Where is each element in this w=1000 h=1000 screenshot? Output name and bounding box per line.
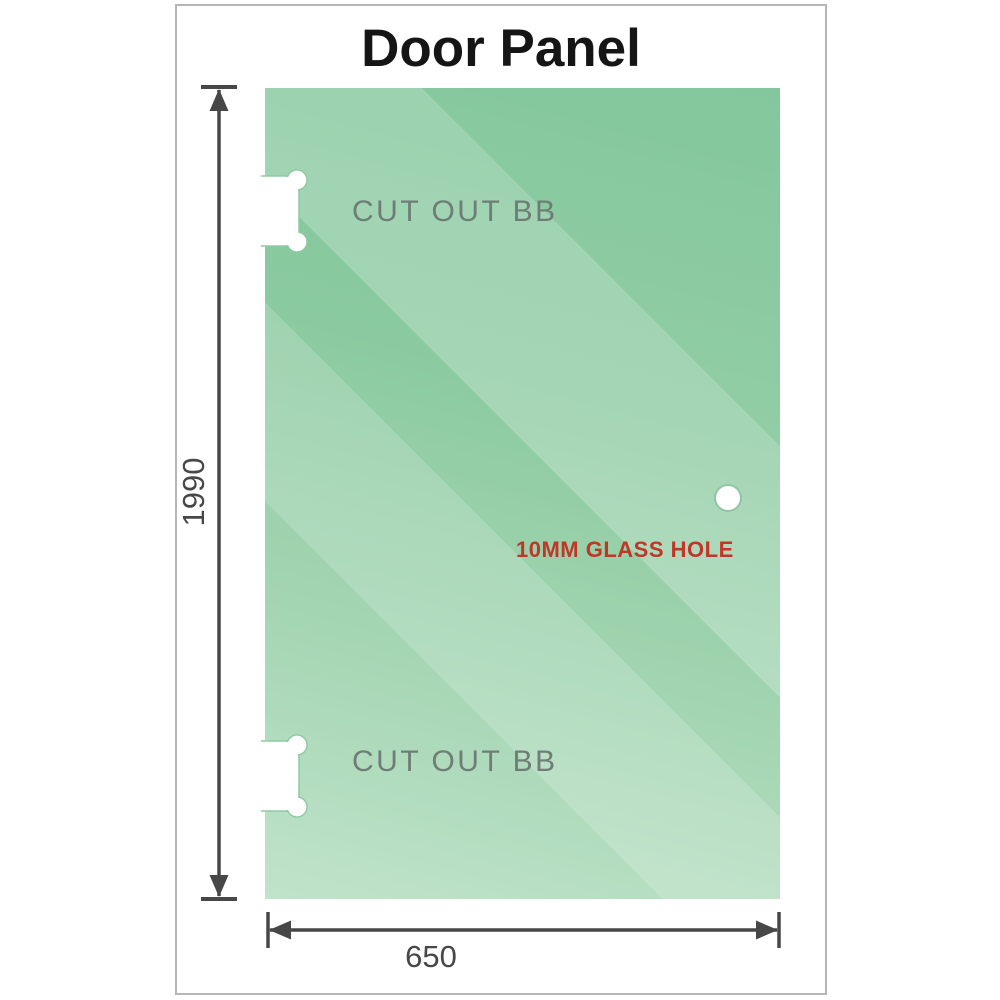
height-dimension-label: 1990 — [179, 447, 209, 537]
glass-hole-label: 10MM GLASS HOLE — [516, 537, 734, 563]
diagram-canvas: Door Panel — [0, 0, 1000, 1000]
diagram-frame: Door Panel — [175, 4, 827, 995]
cutout-bottom-label: CUT OUT BB — [352, 745, 558, 779]
dimension-lines — [177, 6, 829, 994]
cutout-top-label: CUT OUT BB — [352, 195, 558, 229]
width-dimension-label: 650 — [371, 939, 491, 975]
